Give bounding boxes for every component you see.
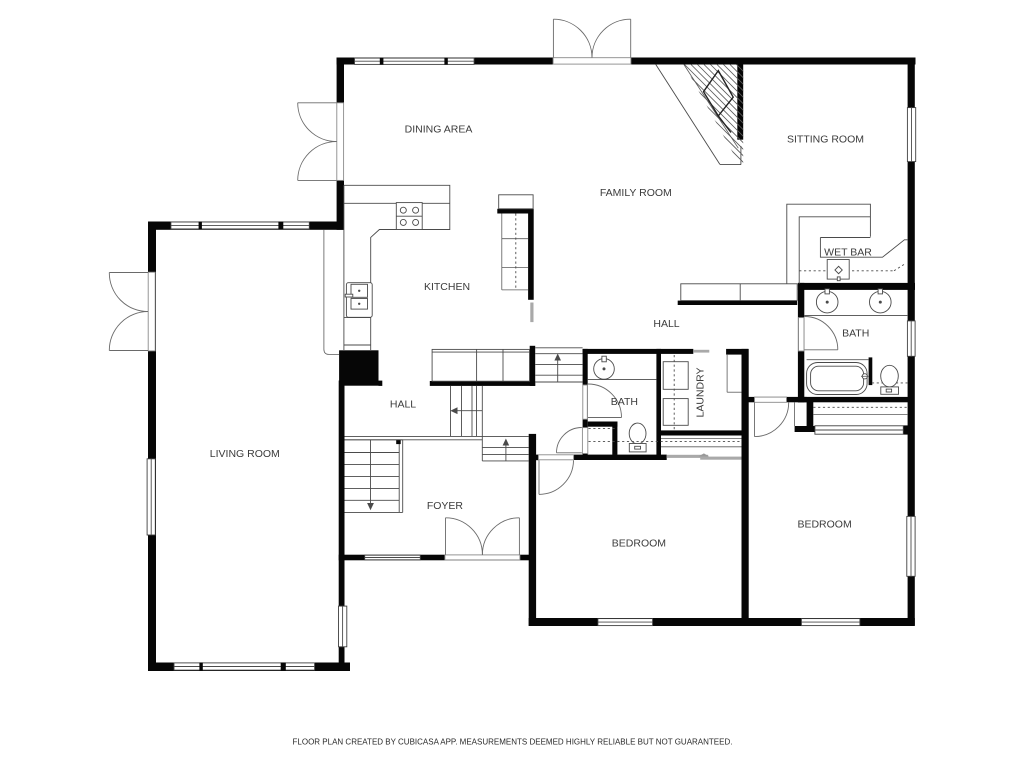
svg-text:FAMILY ROOM: FAMILY ROOM — [600, 187, 672, 199]
svg-text:BATH: BATH — [611, 396, 638, 408]
svg-text:BATH: BATH — [842, 328, 869, 340]
svg-text:SITTING ROOM: SITTING ROOM — [787, 134, 864, 146]
svg-text:BEDROOM: BEDROOM — [612, 537, 666, 549]
svg-text:HALL: HALL — [653, 318, 679, 330]
svg-text:HALL: HALL — [390, 399, 416, 411]
svg-text:KITCHEN: KITCHEN — [424, 281, 470, 293]
svg-text:LAUNDRY: LAUNDRY — [694, 368, 706, 418]
svg-text:DINING AREA: DINING AREA — [405, 124, 473, 136]
svg-text:FLOOR PLAN CREATED BY CUBICASA: FLOOR PLAN CREATED BY CUBICASA APP. MEAS… — [293, 738, 733, 747]
svg-text:BEDROOM: BEDROOM — [797, 518, 851, 530]
svg-text:WET BAR: WET BAR — [824, 246, 872, 258]
svg-text:LIVING ROOM: LIVING ROOM — [210, 448, 280, 460]
svg-text:FOYER: FOYER — [427, 500, 464, 512]
